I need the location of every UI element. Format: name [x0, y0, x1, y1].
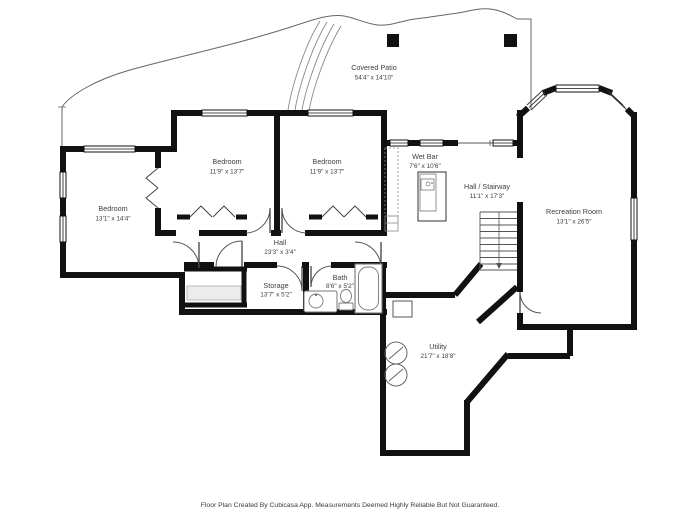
closet-bedroom-middle	[190, 206, 235, 217]
room-name: Bedroom	[212, 157, 241, 166]
room-dims: 11'1" x 17'3"	[470, 193, 505, 200]
floor-plan-page: Covered Patio 54'4" x 14'10" Bedroom 13'…	[0, 0, 700, 525]
closet-bedroom-right	[322, 206, 366, 217]
room-dims: 7'6" x 10'6"	[409, 163, 441, 170]
closet-bedroom-left	[146, 168, 158, 208]
room-dims: 13'7" x 5'2"	[260, 292, 292, 299]
patio-steps	[288, 21, 341, 111]
utility-platform	[393, 301, 412, 317]
floor-plan-svg: Covered Patio 54'4" x 14'10" Bedroom 13'…	[0, 0, 700, 525]
room-label-bedroom-left: Bedroom 13'1" x 14'4"	[95, 204, 130, 223]
window-recroom-right	[631, 198, 637, 240]
patio-posts	[387, 34, 517, 47]
window-bedroom-right	[308, 110, 353, 116]
room-name: Hall / Stairway	[464, 182, 510, 191]
walls	[60, 88, 637, 456]
room-name: Covered Patio	[351, 63, 397, 72]
room-dims: 11'9" x 13'7"	[210, 169, 245, 176]
windows	[60, 85, 637, 242]
room-name: Bath	[333, 273, 348, 282]
room-dims: 13'1" x 14'4"	[95, 216, 130, 223]
room-label-hall: Hall 23'3" x 3'4"	[264, 238, 296, 256]
window-bedroom-left-top	[84, 146, 135, 152]
window-bedroom-left-side-2	[60, 216, 66, 242]
room-label-bath: Bath 8'6" x 5'2"	[326, 273, 354, 290]
room-name: Recreation Room	[546, 207, 602, 216]
room-label-recreation-room: Recreation Room 13'1" x 26'5"	[546, 207, 602, 226]
room-dims: 54'4" x 14'10"	[355, 75, 394, 82]
door-closet-box	[216, 241, 242, 267]
bath-toilet	[339, 290, 353, 311]
door-bedroom-right	[282, 208, 306, 233]
window-bedroom-left-side-1	[60, 172, 66, 198]
room-name: Wet Bar	[412, 152, 438, 161]
patio-post-right	[504, 34, 517, 47]
room-label-bedroom-right: Bedroom 11'9" x 13'7"	[310, 157, 345, 176]
door-recreation-room	[520, 292, 541, 313]
room-name: Hall	[274, 238, 287, 247]
footer-disclaimer: Floor Plan Created By Cubicasa App. Meas…	[201, 502, 500, 509]
room-name: Bedroom	[98, 204, 127, 213]
room-label-wet-bar: Wet Bar 7'6" x 10'6"	[409, 152, 441, 170]
door-bedroom-middle	[246, 208, 270, 233]
room-label-hall-stairway: Hall / Stairway 11'1" x 17'3"	[464, 182, 510, 200]
window-bay-top	[556, 85, 599, 92]
wetbar-island	[418, 172, 446, 221]
water-heater-symbol-1	[385, 342, 407, 364]
patio-post-left	[387, 34, 399, 47]
room-label-storage: Storage 13'7" x 5'2"	[260, 281, 292, 299]
room-label-utility: Utility 21'7" x 18'8"	[420, 342, 455, 360]
wetbar-opening-line	[458, 140, 493, 146]
wetbar-sink	[421, 179, 434, 190]
room-dims: 21'7" x 18'8"	[420, 353, 455, 360]
room-name: Storage	[263, 281, 288, 290]
room-label-bedroom-middle: Bedroom 11'9" x 13'7"	[210, 157, 245, 176]
patio-outline	[58, 9, 531, 146]
water-heater-symbol-2	[385, 364, 407, 386]
storage-shelf	[187, 286, 241, 300]
window-wetbar-3	[493, 140, 513, 146]
room-name: Utility	[429, 342, 447, 351]
utility-equipment	[385, 301, 412, 386]
staircase	[480, 212, 517, 270]
room-dims: 13'1" x 26'5"	[556, 219, 591, 226]
stairs-direction-arrow	[496, 263, 502, 269]
patio-boundary-line	[62, 9, 531, 146]
room-dims: 8'6" x 5'2"	[326, 283, 354, 290]
room-label-covered-patio: Covered Patio 54'4" x 14'10"	[351, 63, 397, 82]
bath-tub	[355, 264, 382, 313]
window-wetbar-1	[390, 140, 408, 146]
window-bedroom-middle	[202, 110, 247, 116]
bath-vanity	[304, 291, 337, 312]
room-dims: 11'9" x 13'7"	[310, 169, 345, 176]
window-wetbar-2	[420, 140, 443, 146]
room-dims: 23'3" x 3'4"	[264, 249, 296, 256]
room-name: Bedroom	[312, 157, 341, 166]
